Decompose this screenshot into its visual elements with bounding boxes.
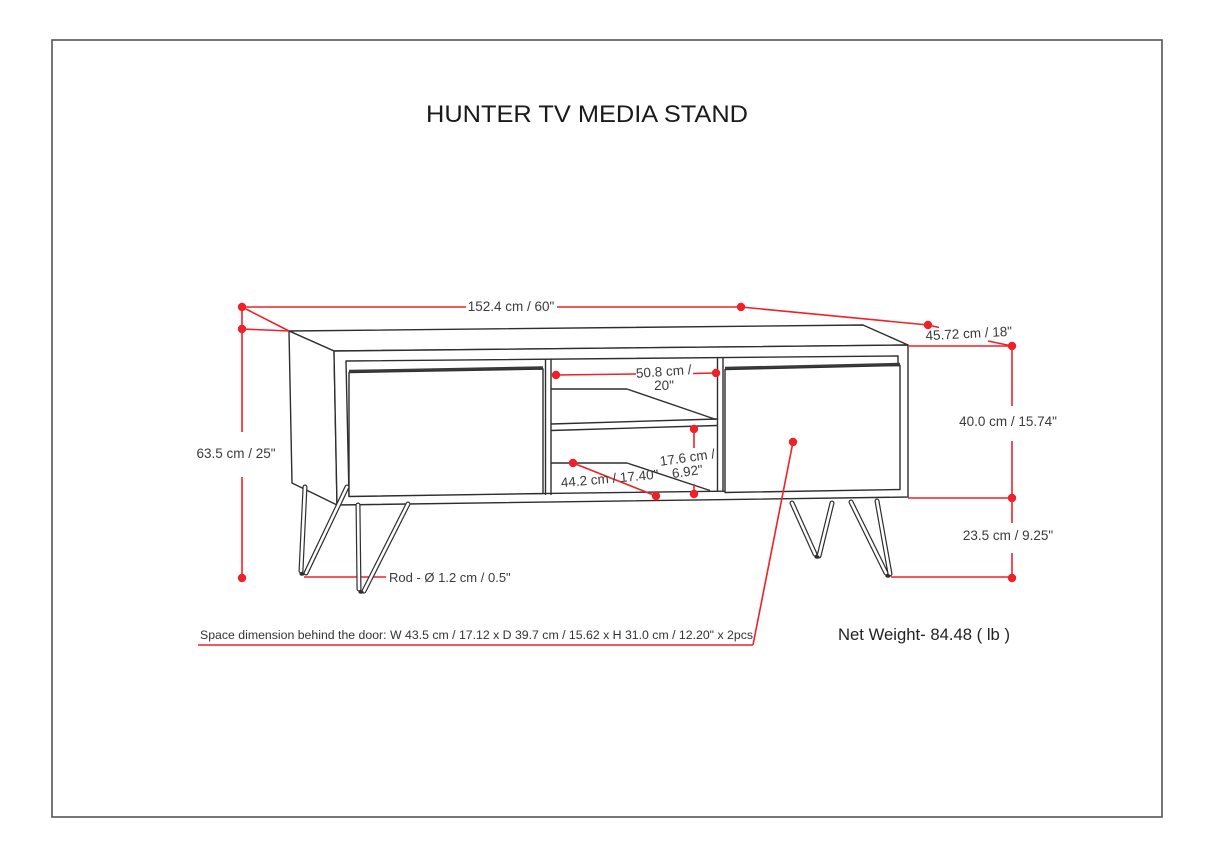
door-space-note: Space dimension behind the door: W 43.5 … xyxy=(200,628,753,642)
dimension-dot xyxy=(737,303,745,311)
dim-leg-height-label: 23.5 cm / 9.25" xyxy=(963,528,1054,543)
dim-cabinet-height-label: 40.0 cm / 15.74" xyxy=(959,414,1057,429)
figure-title: HUNTER TV MEDIA STAND xyxy=(426,101,748,128)
dimension-dot xyxy=(552,371,560,379)
dimension-diagram: HUNTER TV MEDIA STAND xyxy=(0,0,1214,858)
dimension-dot xyxy=(1008,574,1016,582)
net-weight-label: Net Weight- 84.48 ( lb ) xyxy=(838,626,1010,644)
dim-overall-height-label: 63.5 cm / 25" xyxy=(196,446,275,461)
dimension-dot xyxy=(712,369,720,377)
dimension-dot xyxy=(569,459,577,467)
left-side-face xyxy=(289,331,337,505)
dimension-dot xyxy=(789,438,797,446)
right-door xyxy=(725,364,900,493)
dim-shelf-width-label-line2: 20" xyxy=(654,378,674,393)
dimension-dot xyxy=(690,490,698,498)
dimension-dot xyxy=(690,425,698,433)
dimension-dot xyxy=(238,325,246,333)
dimension-dot xyxy=(652,492,660,500)
spec-sheet-page: HUNTER TV MEDIA STAND xyxy=(0,0,1214,858)
rod-diameter-label: Rod - Ø 1.2 cm / 0.5" xyxy=(389,570,511,585)
dim-overall-width-label: 152.4 cm / 60" xyxy=(468,299,555,314)
left-door xyxy=(349,368,543,497)
dimension-dot xyxy=(1008,342,1016,350)
dimension-dot xyxy=(238,303,246,311)
dimension-dot xyxy=(238,574,246,582)
dimension-dot xyxy=(1008,494,1016,502)
